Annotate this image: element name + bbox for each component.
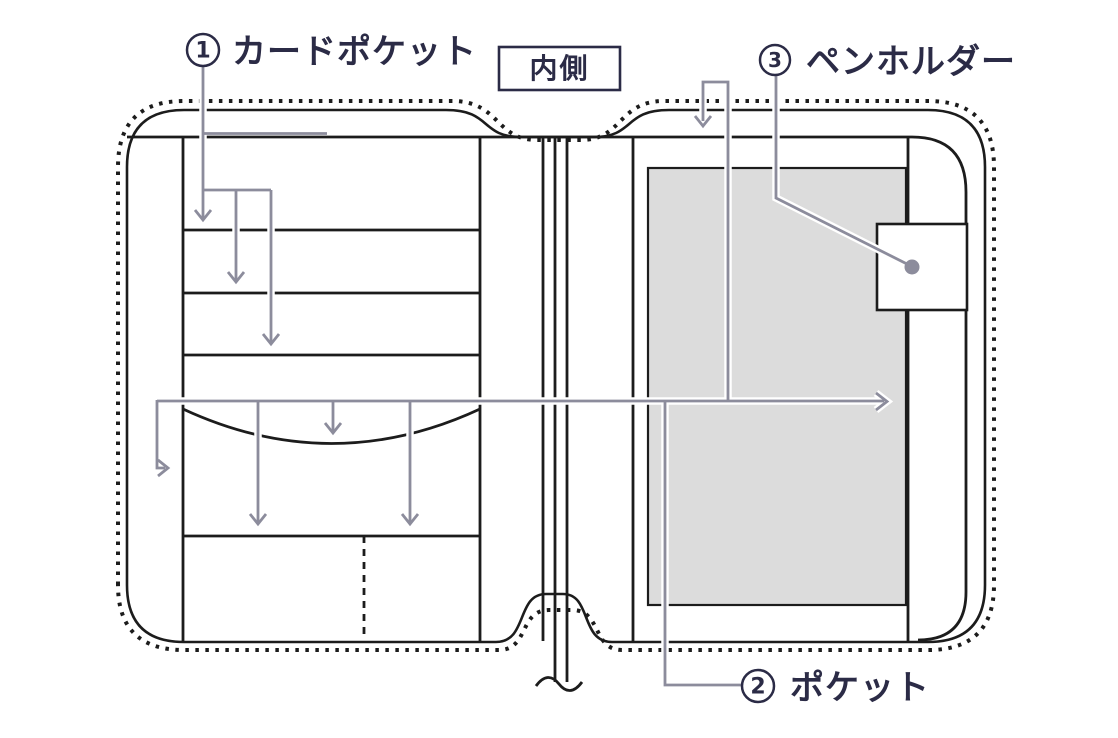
callout-1-number: 1 [195, 39, 210, 64]
callout-card-pocket: 1 カードポケット [187, 32, 477, 72]
inner-side-badge-label: 内側 [529, 52, 589, 85]
diagram-canvas: 1 カードポケット 内側 3 ペンホルダー 2 ポケット [0, 0, 1118, 738]
notebook-cover-inside-diagram: 1 カードポケット 内側 3 ペンホルダー 2 ポケット [0, 0, 1118, 738]
pen-holder-leader-dot [905, 260, 920, 275]
callout-3-number: 3 [768, 48, 782, 72]
notebook-pocket-area [648, 168, 906, 605]
callout-2-label: ポケット [790, 668, 930, 708]
callout-pocket: 2 ポケット [742, 668, 930, 708]
card-pocket-leader [195, 67, 327, 344]
inner-side-badge: 内側 [499, 47, 620, 90]
callout-1-label: カードポケット [232, 32, 477, 72]
callout-pen-holder: 3 ペンホルダー [760, 42, 1016, 82]
spine-break-squiggle [536, 677, 582, 690]
callout-2-number: 2 [750, 675, 765, 700]
callout-3-label: ペンホルダー [806, 42, 1016, 82]
pen-holder-tab [877, 224, 967, 310]
